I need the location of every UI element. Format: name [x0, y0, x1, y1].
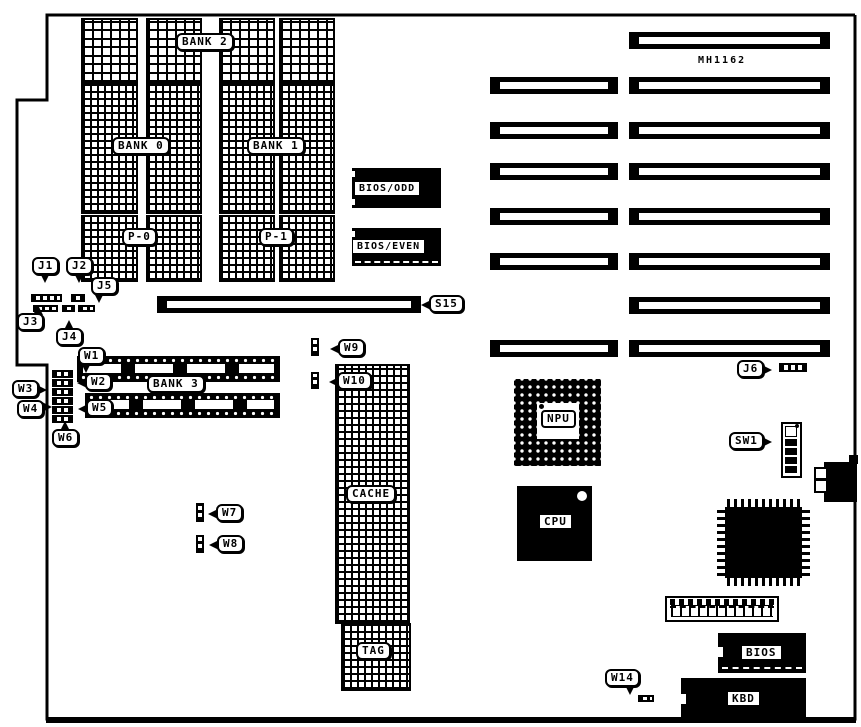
- w4-jumper: [52, 397, 73, 405]
- expansion-slot: [629, 32, 830, 49]
- j4-label: J4: [56, 328, 83, 346]
- expansion-slot: [490, 208, 618, 225]
- sw1-dip-switch: [781, 422, 802, 478]
- expansion-slot: [629, 122, 830, 139]
- s15-label: S15: [429, 295, 464, 313]
- j3-label: J3: [17, 313, 44, 331]
- pin1-dot: [577, 491, 587, 501]
- expansion-slot: [629, 208, 830, 225]
- s15-slot: [157, 296, 421, 313]
- bios-label: BIOS: [742, 646, 781, 659]
- w14-jumper: [638, 695, 654, 702]
- w7-jumper: [196, 503, 204, 522]
- cache-label: CACHE: [346, 485, 396, 503]
- board-model-text: MH1162: [698, 55, 746, 66]
- expansion-slot: [629, 77, 830, 94]
- cpu-chip: CPU: [517, 486, 592, 561]
- w14-label: W14: [605, 669, 640, 687]
- bios-odd-chip: BIOS/ODD: [352, 168, 441, 208]
- w8-jumper: [196, 535, 204, 553]
- w7-label: W7: [216, 504, 243, 522]
- simm-column-p1: [219, 215, 275, 282]
- w10-label: W10: [337, 372, 372, 390]
- w4-label: W4: [17, 400, 44, 418]
- j1-jumper: [31, 294, 62, 302]
- expansion-slot: [629, 340, 830, 357]
- kbd-chip: KBD: [681, 678, 806, 719]
- bios-even-label: BIOS/EVEN: [353, 240, 424, 253]
- bios-chip: BIOS: [718, 633, 806, 673]
- expansion-slot: [490, 122, 618, 139]
- bank1-label: BANK 1: [247, 137, 305, 155]
- rear-port-icon: [814, 479, 828, 493]
- j6-label: J6: [737, 360, 764, 378]
- j5-jumper: [78, 305, 95, 312]
- simm-column-p0: [146, 215, 202, 282]
- header-connector: [665, 596, 779, 622]
- simm-column-bank2: [146, 18, 202, 84]
- j4-jumper: [62, 305, 75, 312]
- expansion-slot: [629, 297, 830, 314]
- sw1-label: SW1: [729, 432, 764, 450]
- bank0-label: BANK 0: [112, 137, 170, 155]
- cpu-label: CPU: [540, 515, 571, 528]
- expansion-slot: [490, 77, 618, 94]
- simm-column-bank2: [81, 18, 138, 84]
- j6-jumper: [779, 363, 807, 372]
- simm-column-bank2: [279, 18, 335, 84]
- p0-label: P-0: [122, 228, 157, 246]
- w6-label: W6: [52, 429, 79, 447]
- w2-jumper: [52, 379, 73, 387]
- w1-label: W1: [78, 347, 105, 365]
- j5-label: J5: [91, 277, 118, 295]
- w1-jumper: [52, 370, 73, 378]
- expansion-slot: [629, 253, 830, 270]
- npu-label: NPU: [541, 410, 576, 428]
- j1-label: J1: [32, 257, 59, 275]
- expansion-slot: [629, 163, 830, 180]
- bank3-socket: [85, 393, 280, 418]
- w3-jumper: [52, 388, 73, 396]
- expansion-slot: [490, 253, 618, 270]
- w5-jumper: [52, 406, 73, 414]
- w9-label: W9: [338, 339, 365, 357]
- expansion-slot: [490, 163, 618, 180]
- simm-column-bank2: [219, 18, 275, 84]
- w2-label: W2: [85, 373, 112, 391]
- w5-label: W5: [86, 399, 113, 417]
- bank2-label: BANK 2: [176, 33, 234, 51]
- j2-jumper: [71, 294, 85, 302]
- simm-column-p1: [279, 215, 335, 282]
- motherboard-diagram: BANK 2 BANK 0 BANK 1 P-0 P-1 MH1162 S15 …: [0, 0, 861, 727]
- qfp-chip: [725, 507, 802, 578]
- w9-jumper: [311, 338, 319, 356]
- bios-even-chip: BIOS/EVEN: [352, 228, 441, 266]
- p1-label: P-1: [259, 228, 294, 246]
- bank3-label: BANK 3: [147, 375, 205, 393]
- j2-label: J2: [66, 257, 93, 275]
- w8-label: W8: [217, 535, 244, 553]
- w10-jumper: [311, 372, 319, 389]
- w3-label: W3: [12, 380, 39, 398]
- kbd-label: KBD: [728, 692, 759, 705]
- npu-chip: NPU: [514, 379, 601, 466]
- tag-label: TAG: [356, 642, 391, 660]
- bios-odd-label: BIOS/ODD: [355, 182, 419, 195]
- expansion-slot: [490, 340, 618, 357]
